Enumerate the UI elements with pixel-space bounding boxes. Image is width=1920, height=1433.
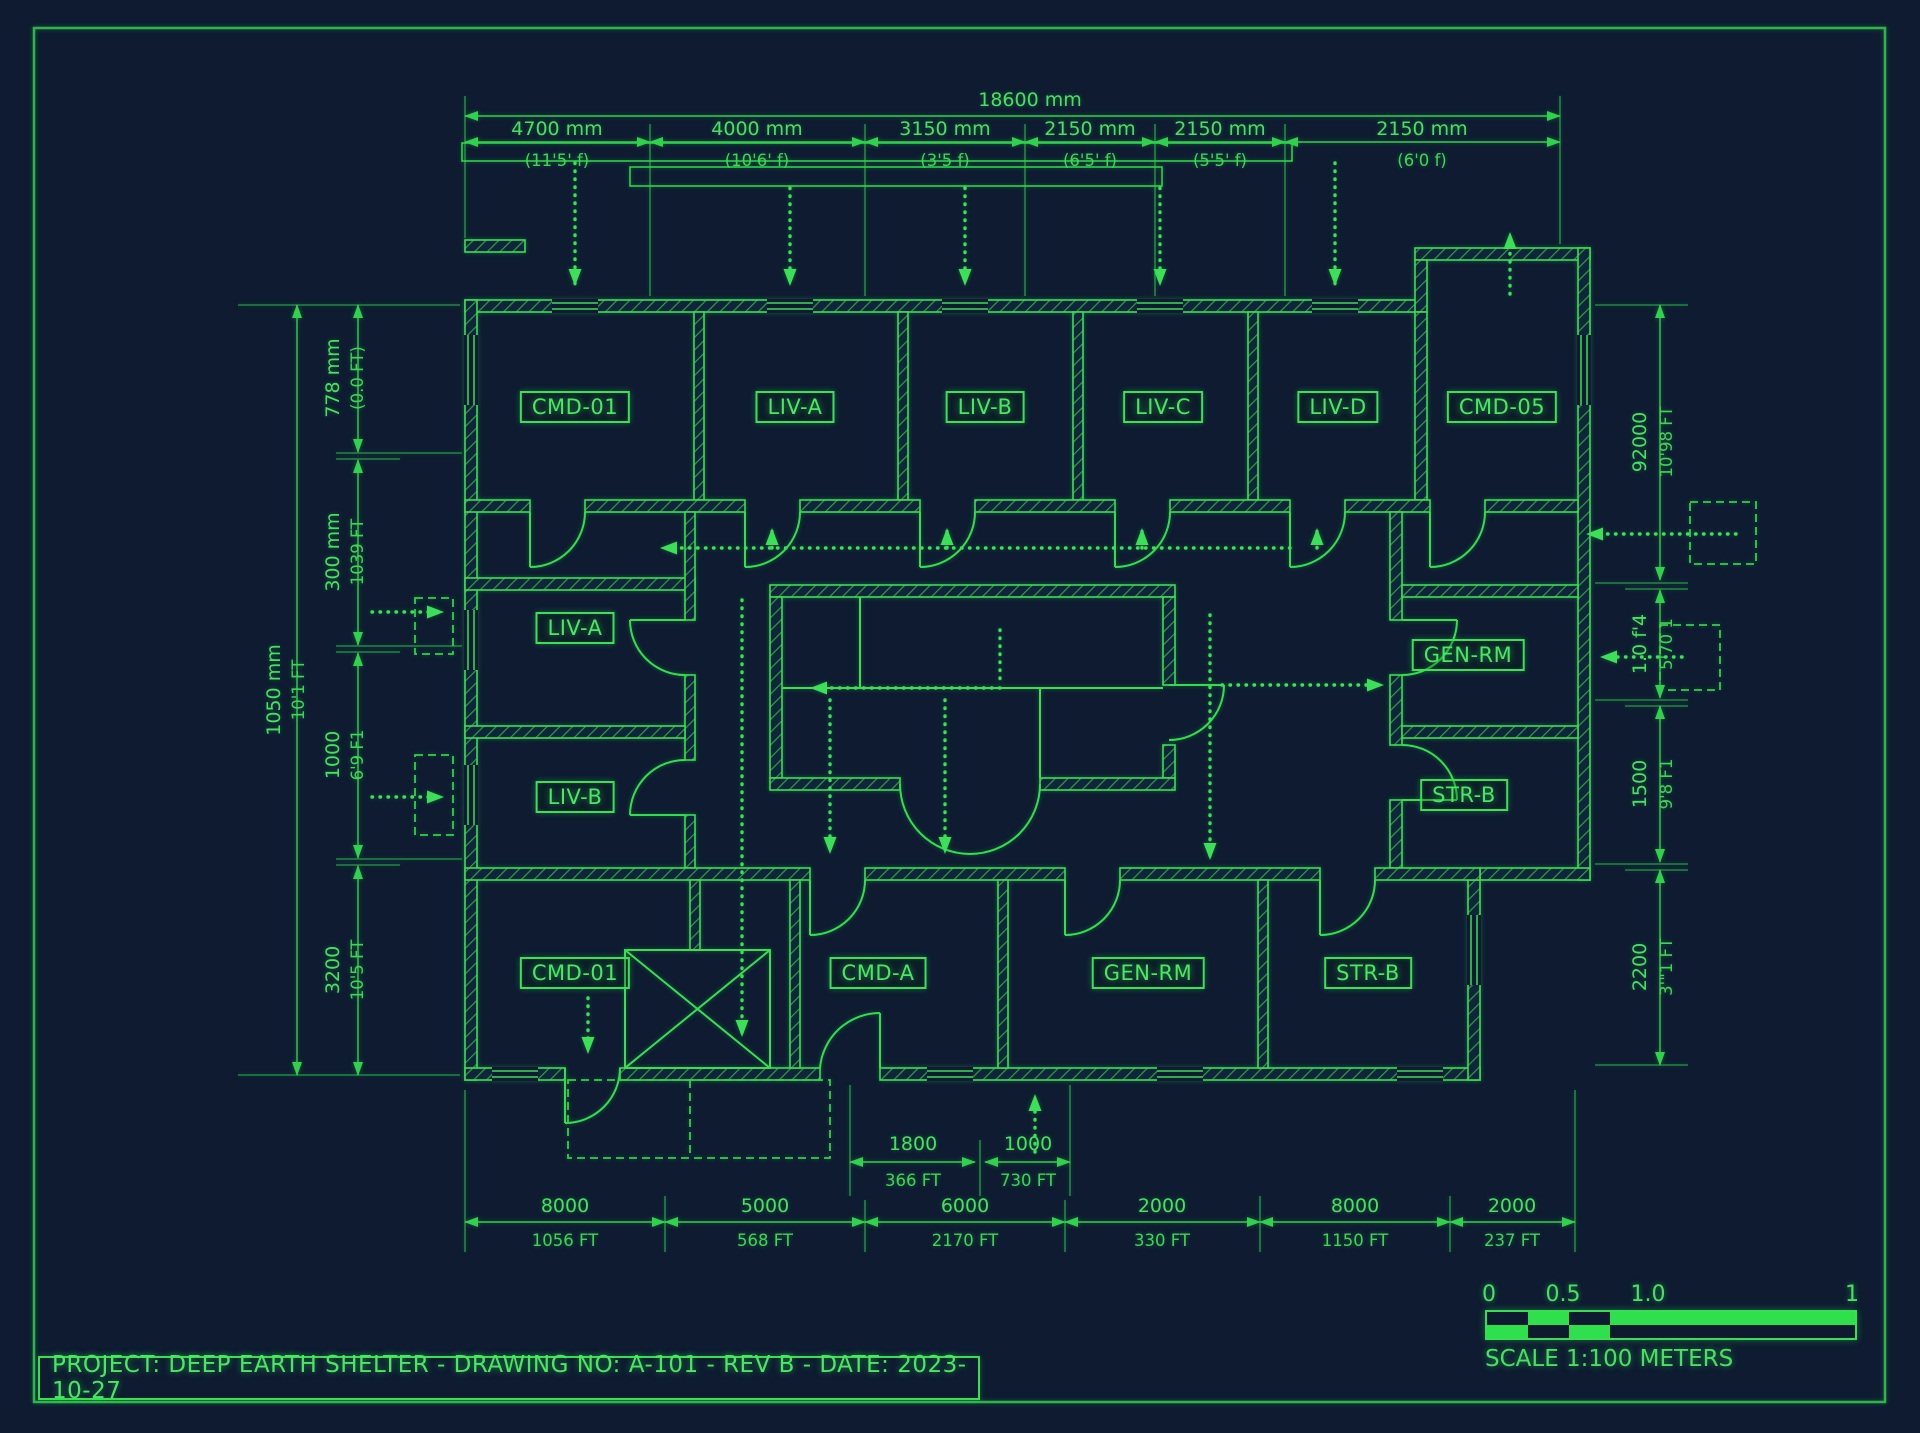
- service-box-right-1: [1690, 502, 1756, 564]
- scale-bar-graphic: [1485, 1310, 1857, 1340]
- dim-label: (6'0 f): [1397, 151, 1446, 170]
- blueprint-page: 18600 mm 4700 mm (11'5' f) 4000 mm (10'6…: [0, 0, 1920, 1433]
- scale-bar: 0 0.5 1.0 1 SCALE 1:100 METERS: [1485, 1282, 1857, 1392]
- dim-label: 330 FT: [1134, 1231, 1191, 1250]
- room-label-liv-d-top: LIV-D: [1297, 391, 1378, 423]
- dim-label: 1000: [1004, 1133, 1052, 1155]
- floor-plan-drawing: 18600 mm 4700 mm (11'5' f) 4000 mm (10'6…: [0, 0, 1920, 1433]
- dim-label: 237 FT: [1484, 1231, 1541, 1250]
- core-partitions: [625, 597, 1163, 1068]
- dim-label: 4000 mm: [711, 118, 802, 140]
- room-label-str-b-bottom: STR-B: [1324, 957, 1412, 989]
- dim-label: 4700 mm: [511, 118, 602, 140]
- dim-label: (10'6' f): [725, 151, 790, 170]
- dim-label: 5'70 1: [1657, 618, 1676, 670]
- dim-label: 2000: [1138, 1195, 1186, 1217]
- dim-label: 3'"1 FT: [1657, 937, 1676, 996]
- dim-label: 10'98 FT: [1657, 406, 1676, 478]
- dim-label: 6000: [941, 1195, 989, 1217]
- dim-label: 2200: [1629, 943, 1651, 991]
- service-box-left-2: [415, 755, 453, 835]
- room-label-liv-a-top: LIV-A: [755, 391, 834, 423]
- dim-label: 568 FT: [737, 1231, 794, 1250]
- scale-label: SCALE 1:100 METERS: [1485, 1346, 1733, 1372]
- dim-label: 778 mm: [322, 338, 344, 417]
- dim-left-overall-ft: 10'1 FT: [289, 659, 308, 720]
- dim-left-overall: 1050 mm: [263, 644, 285, 735]
- room-label-cmd-a: CMD-A: [830, 957, 927, 989]
- dim-label: 1000: [322, 731, 344, 779]
- dim-label: 1056 FT: [532, 1231, 599, 1250]
- dim-label: 10'5 FT: [348, 939, 367, 1000]
- scale-tick-05: 0.5: [1546, 1282, 1581, 1307]
- dim-label: 3150 mm: [899, 118, 990, 140]
- dim-label: 1.0 f'4: [1629, 614, 1651, 674]
- room-label-gen-rm-mid: GEN-RM: [1412, 639, 1525, 671]
- dim-label: 1039 FT: [348, 518, 367, 585]
- dim-label: 300 mm: [322, 512, 344, 591]
- room-label-liv-b-top: LIV-B: [946, 391, 1025, 423]
- dim-label: 6'9 F1: [348, 730, 367, 781]
- dim-label: 2150 mm: [1376, 118, 1467, 140]
- dim-label: 2170 FT: [932, 1231, 999, 1250]
- title-block: PROJECT: DEEP EARTH SHELTER - DRAWING NO…: [38, 1356, 980, 1400]
- dim-top-overall: 18600 mm: [978, 89, 1082, 111]
- dim-label: 1800: [889, 1133, 937, 1155]
- dim-label: 5000: [741, 1195, 789, 1217]
- room-label-str-b-mid: STR-B: [1420, 779, 1508, 811]
- dim-label: 3200: [322, 946, 344, 994]
- room-label-liv-a-mid: LIV-A: [535, 612, 614, 644]
- dim-label: 2150 mm: [1174, 118, 1265, 140]
- dim-label: 9'8 F1: [1657, 759, 1676, 810]
- dim-label: (6'5' f): [1063, 151, 1117, 170]
- room-label-cmd-05: CMD-05: [1447, 391, 1557, 423]
- scale-tick-1: 1: [1845, 1282, 1859, 1307]
- dim-label: 8000: [1331, 1195, 1379, 1217]
- duct-lines: [415, 143, 1756, 1158]
- scale-tick-10: 1.0: [1631, 1282, 1666, 1307]
- dim-label: 92000: [1629, 412, 1651, 472]
- dim-label: (3'5 f): [920, 151, 969, 170]
- dim-label: 366 FT: [885, 1171, 942, 1190]
- service-box-bottom: [568, 1080, 830, 1158]
- dim-label: 730 FT: [1000, 1171, 1057, 1190]
- title-block-text: PROJECT: DEEP EARTH SHELTER - DRAWING NO…: [52, 1352, 978, 1404]
- dim-label: (5'5' f): [1193, 151, 1247, 170]
- room-label-cmd-01-top: CMD-01: [520, 391, 630, 423]
- dim-label: (0.0 FT): [348, 346, 367, 410]
- room-label-liv-b-mid: LIV-B: [536, 781, 615, 813]
- dim-label: 2150 mm: [1044, 118, 1135, 140]
- room-label-cmd-01-bottom: CMD-01: [520, 957, 630, 989]
- dim-label: (11'5' f): [525, 151, 590, 170]
- scale-tick-0: 0: [1482, 1282, 1496, 1307]
- dim-label: 8000: [541, 1195, 589, 1217]
- dim-label: 2000: [1488, 1195, 1536, 1217]
- room-label-gen-rm-bottom: GEN-RM: [1092, 957, 1205, 989]
- dim-label: 1500: [1629, 760, 1651, 808]
- room-label-liv-c-top: LIV-C: [1123, 391, 1203, 423]
- dim-label: 1150 FT: [1322, 1231, 1389, 1250]
